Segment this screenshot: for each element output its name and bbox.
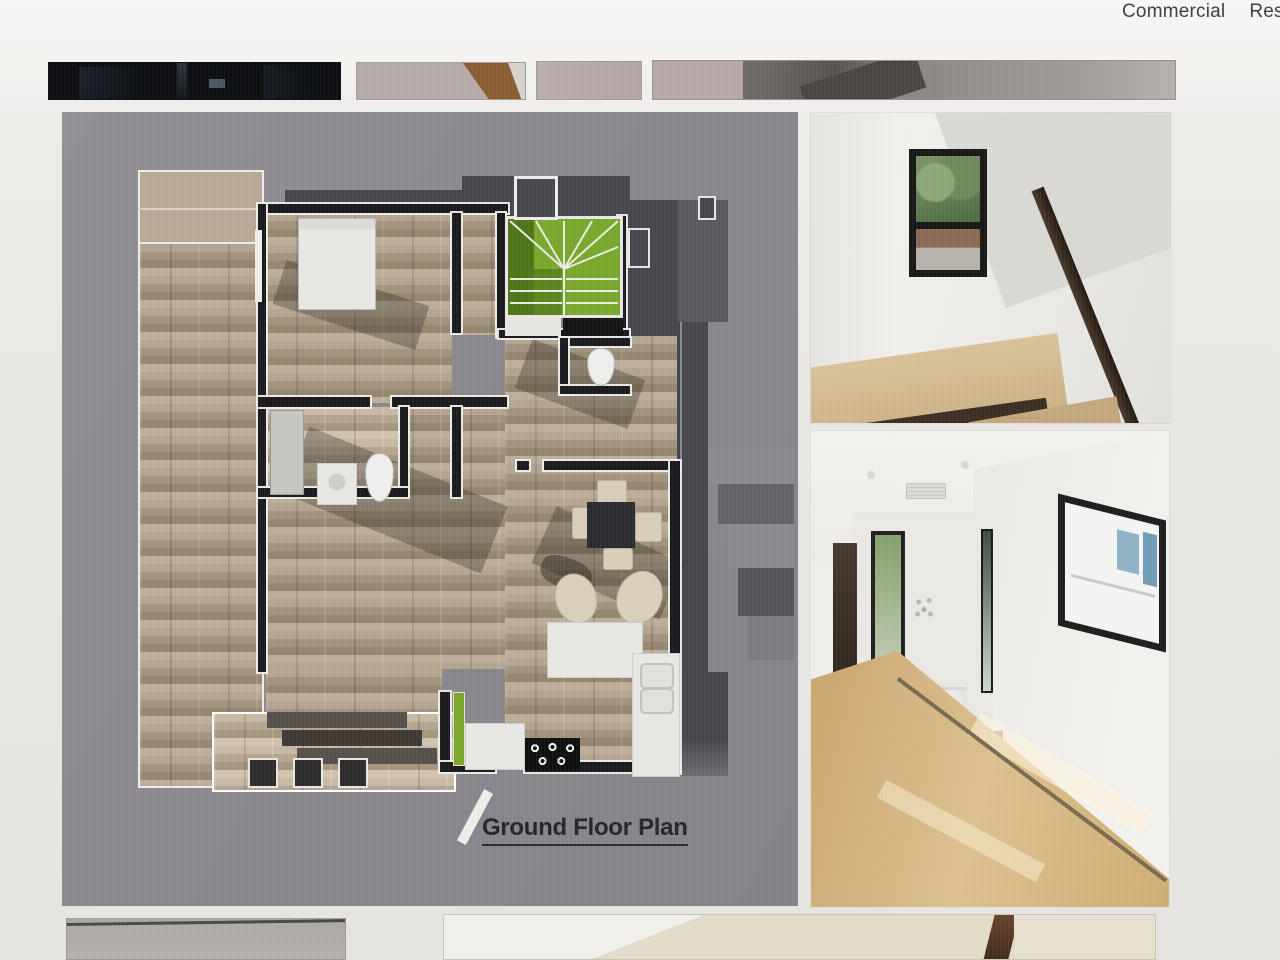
left-deck-divider	[138, 208, 260, 210]
deck-step-shadow-1	[267, 712, 407, 728]
left-wood-walkway	[138, 242, 264, 788]
wall-powder-bottom	[560, 386, 630, 394]
night-photo-streak	[177, 63, 187, 100]
real-estate-gallery-page: Commercial Res	[0, 0, 1280, 960]
dining-table	[587, 502, 635, 548]
thumbnail-exterior-night[interactable]	[48, 62, 341, 100]
wall-bedroom-right	[452, 213, 461, 333]
night-photo-shape	[263, 65, 323, 99]
bed	[298, 218, 376, 310]
nav-item-residential-truncated[interactable]: Res	[1249, 1, 1280, 23]
recessed-light-2	[961, 461, 969, 469]
wall-bath-divider	[400, 407, 408, 495]
exterior-step-5	[748, 616, 794, 660]
nav-item-commercial[interactable]: Commercial	[1122, 1, 1225, 23]
window-paper-1	[1117, 529, 1139, 574]
upper-hall-floor	[461, 213, 499, 335]
wall-dining-top-b	[544, 461, 679, 470]
stair-landing-dark	[563, 318, 623, 336]
wall-edge-line	[67, 919, 346, 926]
photo-hallway[interactable]	[810, 430, 1170, 908]
roof-door-mark	[698, 196, 716, 220]
wall-dining-top-a	[517, 461, 529, 470]
thumbnail-bottom-wall[interactable]	[66, 918, 346, 960]
deck-step-shadow-2	[282, 730, 422, 746]
stairwell-left-wall	[653, 61, 743, 100]
kitchen-counter-left	[465, 723, 525, 770]
window-pane-top	[916, 156, 980, 222]
ceiling-vent	[906, 483, 946, 499]
stair-landing-white	[505, 318, 561, 336]
kitchen-sink-1	[640, 663, 674, 689]
window-pane-bottom	[916, 229, 980, 270]
hall-window-right	[1058, 494, 1166, 653]
deck-pad-1	[248, 758, 278, 788]
thumbnail-hall-mauve[interactable]	[536, 61, 642, 100]
green-side-door	[453, 692, 465, 766]
top-nav: Commercial Res	[1122, 1, 1280, 23]
wall-bedroom-top	[258, 204, 508, 213]
deck-pad-2	[293, 758, 323, 788]
floor-plan-image[interactable]: Ground Floor Plan	[62, 112, 798, 906]
exterior-step-2	[718, 484, 794, 524]
wall-closet-right	[452, 407, 461, 497]
stair-winder-lines	[508, 219, 620, 315]
recessed-light-1	[867, 471, 875, 479]
left-deck-top	[138, 170, 264, 244]
dining-chair-right	[635, 512, 662, 542]
night-photo-sign	[209, 79, 225, 88]
kitchen-island	[547, 622, 643, 678]
stair-window-right	[628, 228, 650, 268]
exterior-step-3	[728, 524, 794, 568]
window-paper-2	[1143, 532, 1157, 587]
green-staircase	[505, 216, 623, 318]
slit-window	[981, 529, 993, 693]
shower	[270, 410, 304, 495]
exterior-step-4	[738, 568, 794, 616]
bath-vanity	[317, 463, 357, 505]
bedroom-window	[255, 230, 262, 302]
wall-bath-top-left	[258, 397, 370, 407]
dining-chair-bottom	[603, 548, 633, 570]
thumbnail-interior-wood[interactable]	[356, 62, 526, 100]
wall-powder-top	[560, 338, 630, 346]
night-photo-glow	[79, 67, 149, 100]
kitchen-sink-2	[640, 688, 674, 714]
thumbnail-bottom-interior[interactable]	[443, 914, 1156, 960]
wall-lower-left	[440, 692, 450, 772]
plan-title: Ground Floor Plan	[482, 814, 688, 846]
thumbnail-stairwell-wide[interactable]	[652, 60, 1176, 100]
dining-chair-top	[597, 480, 627, 504]
beige-wall-right	[1014, 915, 1156, 960]
wall-bath-top-right	[392, 397, 507, 407]
photo-stairway[interactable]	[810, 112, 1172, 424]
stair-skylight	[514, 176, 558, 220]
wall-hall-right	[497, 213, 505, 337]
exterior-step-1	[708, 448, 794, 484]
stove	[525, 738, 580, 770]
chandelier	[911, 593, 937, 623]
ceiling-wedge	[444, 915, 704, 960]
stair-window	[909, 149, 987, 277]
stairwell-right-wall	[943, 61, 1176, 100]
deck-pad-3	[338, 758, 368, 788]
